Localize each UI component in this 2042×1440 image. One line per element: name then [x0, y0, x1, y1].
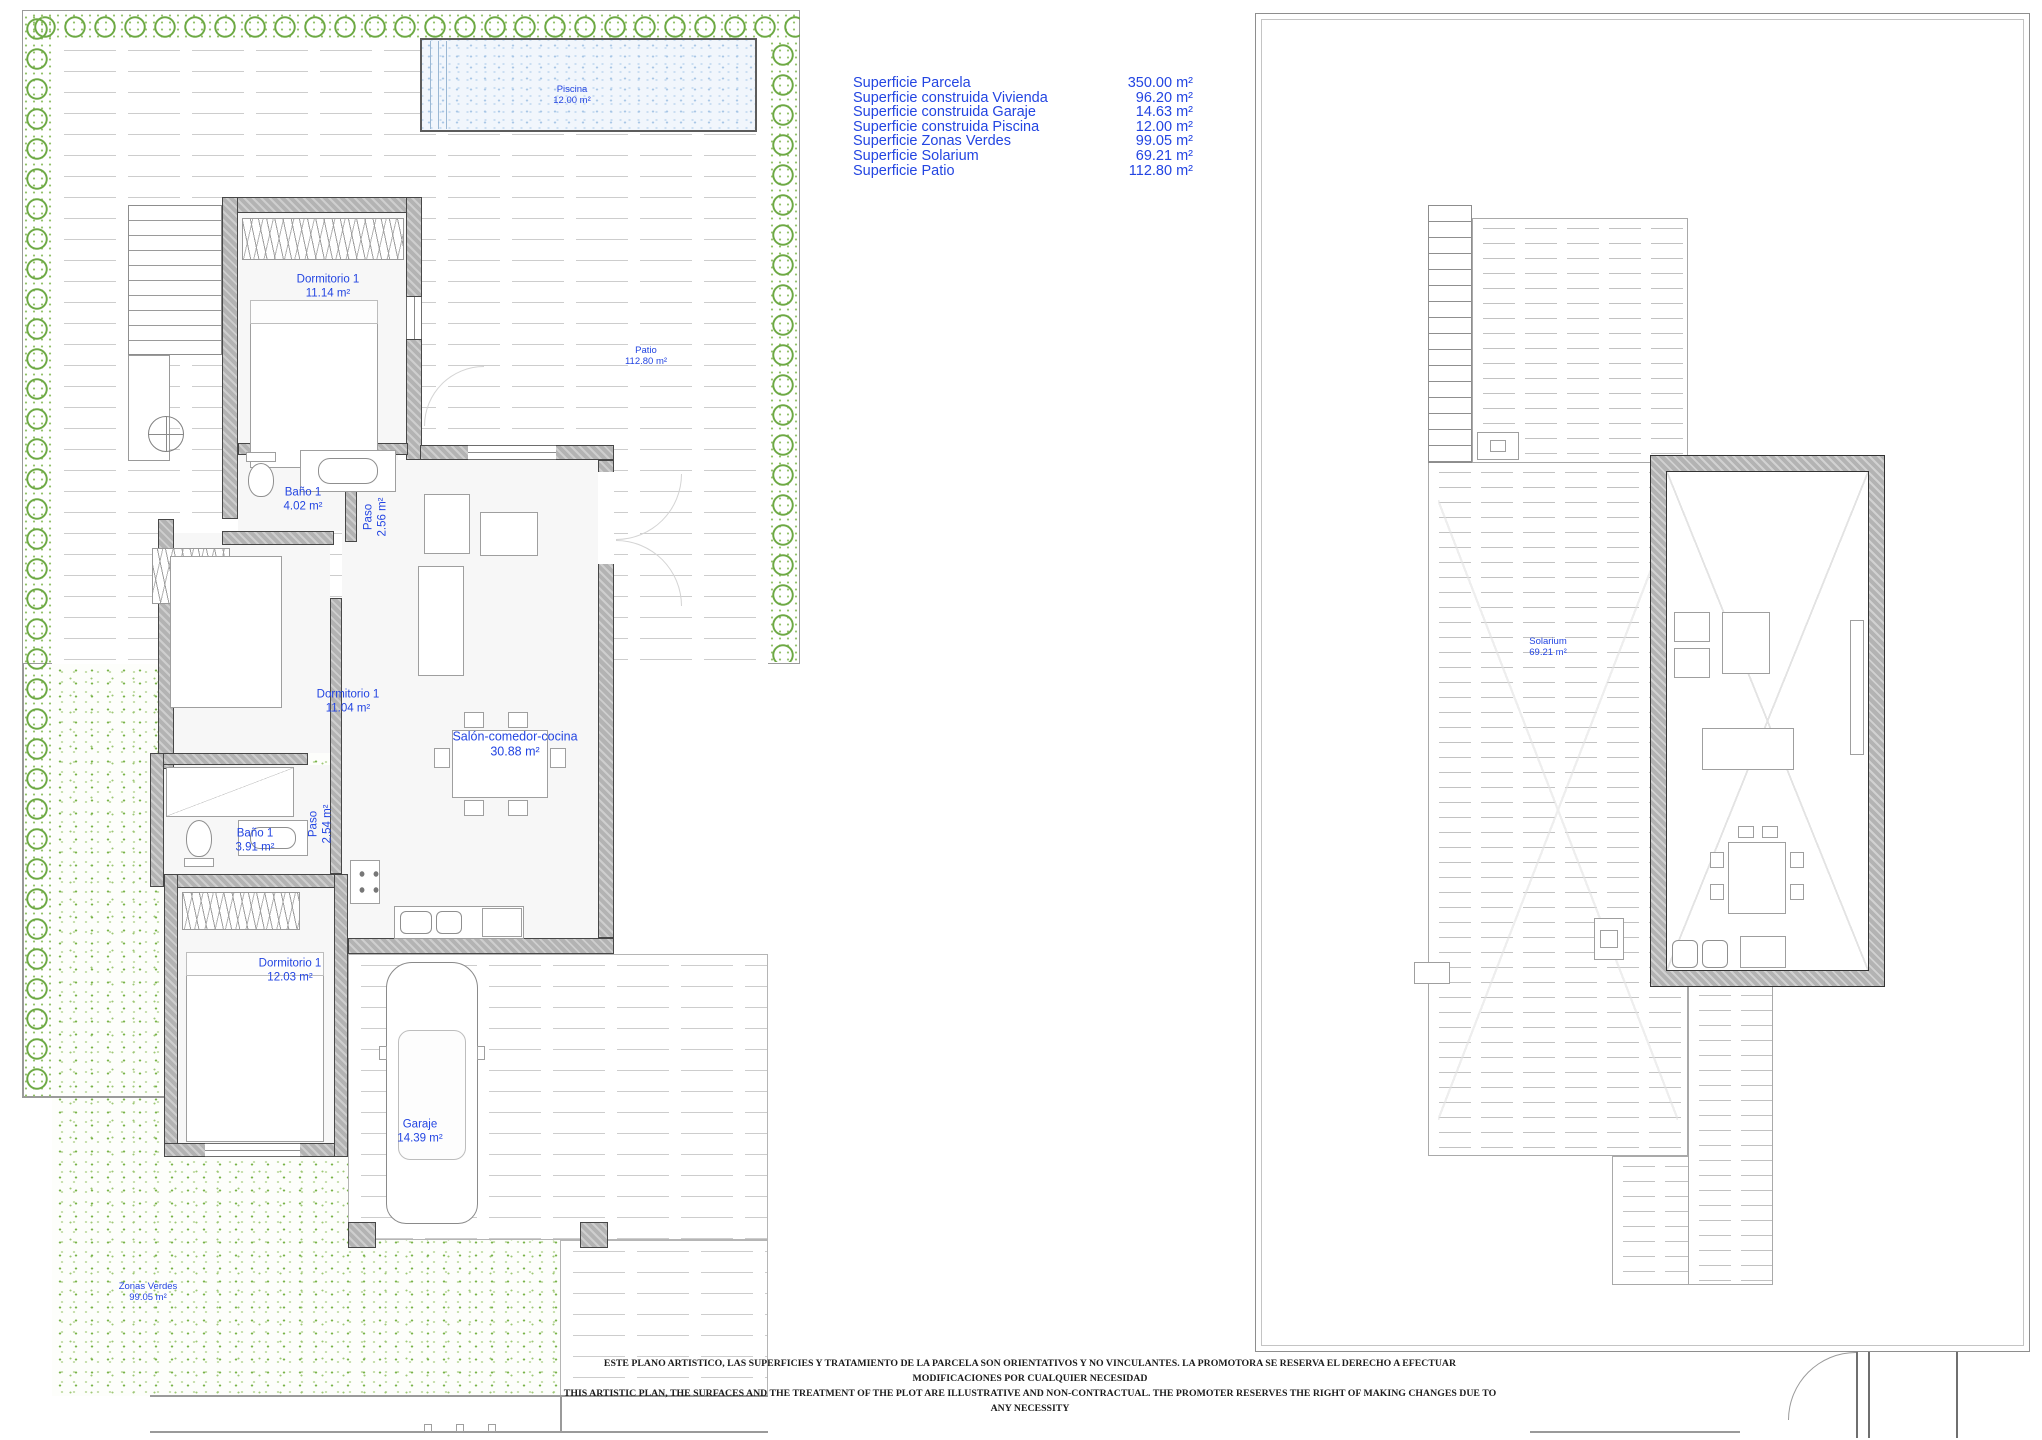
room-name: Dormitorio 1 [297, 273, 360, 285]
table-row: Superficie Solarium69.21 m² [853, 149, 1193, 164]
sofa [1702, 728, 1794, 770]
solarium-plan: Solarium 69.21 m² [1240, 0, 2042, 1440]
pool-steps [423, 41, 447, 129]
closet-dorm3 [182, 892, 300, 930]
boundary-stub [1956, 1352, 1958, 1438]
chair [1738, 826, 1754, 838]
armchair [1674, 612, 1710, 642]
room-area: 14.39 m² [397, 1132, 442, 1144]
gate-post-line [1868, 1352, 1870, 1438]
room-label-zonas-verdes: Zonas Verdes 99.05 m² [119, 1281, 178, 1303]
toilet-tank [246, 452, 276, 462]
room-area: 2.56 m² [376, 498, 388, 537]
room-name: Garaje [403, 1118, 438, 1130]
table-row: Superficie Zonas Verdes99.05 m² [853, 134, 1193, 149]
room-name: Piscina [557, 84, 588, 95]
window [205, 1143, 300, 1157]
wall-segment [150, 753, 164, 887]
chair [1710, 852, 1724, 868]
room-name: Patio [635, 345, 657, 356]
roof-slope-marks [1438, 500, 1678, 1120]
chair [464, 712, 484, 728]
room-label-dormitorio-norte: Dormitorio 1 11.14 m² [297, 273, 360, 300]
row-value: 69.21 m² [1136, 149, 1193, 164]
shower [166, 767, 294, 817]
room-name: Paso [307, 811, 319, 837]
chair [434, 748, 450, 768]
double-sink [1672, 940, 1698, 968]
ground-floor-plan: Piscina 12.00 m² Patio 112.80 m² Dormito… [0, 0, 820, 1440]
garage-pillar [580, 1222, 608, 1248]
toilet [248, 463, 274, 497]
room-label-bano-norte: Baño 1 4.02 m² [284, 486, 323, 513]
row-value: 96.20 m² [1136, 91, 1193, 106]
garage-pillar [348, 1222, 376, 1248]
dishwasher [482, 908, 522, 937]
coffee-table [480, 512, 538, 556]
row-label: Superficie construida Vivienda [853, 91, 1048, 106]
chair [464, 800, 484, 816]
gate-post-line [1856, 1352, 1858, 1438]
room-label-paso-norte: Paso 2.56 m² [362, 498, 389, 537]
room-name: Baño 1 [285, 486, 321, 498]
disclaimer-line-es: ESTE PLANO ARTISTICO, LAS SUPERFICIES Y … [560, 1356, 1500, 1386]
patio-door-opening [598, 472, 614, 564]
room-area: 69.21 m² [1529, 647, 1567, 658]
chimney-inner [1600, 930, 1618, 948]
table-row: Superficie construida Garaje14.63 m² [853, 105, 1193, 120]
chair [1790, 884, 1804, 900]
room-name: Baño 1 [237, 827, 273, 839]
chair [1762, 826, 1778, 838]
wall-segment [406, 197, 422, 297]
bed [250, 300, 378, 468]
sideboard [1850, 620, 1864, 755]
solarium-terrace [1612, 1156, 1689, 1285]
gate-swing-arc [1788, 1352, 1856, 1420]
room-label-solarium: Solarium 69.21 m² [1529, 636, 1567, 658]
room-area: 3.91 m² [236, 841, 275, 853]
floor-plan-sheet: Piscina 12.00 m² Patio 112.80 m² Dormito… [0, 0, 2042, 1440]
room-name: Dormitorio 1 [317, 688, 380, 700]
curb-tick [456, 1424, 464, 1432]
curb-line [1530, 1431, 1740, 1433]
tree-column-right [768, 40, 800, 662]
room-area: 2.54 m² [321, 805, 333, 844]
wall-segment [222, 531, 334, 545]
chair [1790, 852, 1804, 868]
room-name: Solarium [1529, 636, 1567, 647]
coffee-table [1722, 612, 1770, 674]
row-label: Superficie Patio [853, 164, 955, 179]
room-name: Paso [362, 504, 374, 530]
wall-segment [222, 197, 422, 213]
stair-landing-box-inner [1490, 440, 1506, 452]
window [406, 297, 422, 339]
car-mirror [379, 1046, 387, 1060]
room-area: 112.80 m² [625, 356, 667, 367]
closet-dorm1 [242, 218, 404, 260]
room-label-paso-sur: Paso 2.54 m² [307, 805, 334, 844]
row-value: 99.05 m² [1136, 134, 1193, 149]
solarium-terrace [1472, 218, 1688, 463]
row-label: Superficie Solarium [853, 149, 979, 164]
room-name: Dormitorio 1 [259, 957, 322, 969]
solarium-terrace [1688, 985, 1773, 1285]
appliance [1740, 936, 1786, 968]
room-name: Zonas Verdes [119, 1281, 178, 1292]
entry-stairs [128, 205, 222, 355]
room-label-bano-sur: Baño 1 3.91 m² [236, 827, 275, 854]
wall-segment [164, 874, 346, 888]
room-label-dormitorio-centro: Dormitorio 1 11.04 m² [317, 688, 380, 715]
room-area: 11.14 m² [306, 287, 351, 299]
room-label-piscina: Piscina 12.00 m² [553, 84, 591, 106]
solarium-stairs [1428, 205, 1472, 463]
kitchen-sink [400, 911, 432, 934]
double-sink [1702, 940, 1728, 968]
row-label: Superficie construida Piscina [853, 120, 1039, 135]
wall-segment [406, 339, 422, 460]
row-value: 14.63 m² [1136, 105, 1193, 120]
row-label: Superficie Zonas Verdes [853, 134, 1011, 149]
room-area: 4.02 m² [284, 500, 323, 512]
room-area: 12.03 m² [267, 971, 312, 983]
room-label-dormitorio-sur: Dormitorio 1 12.03 m² [259, 957, 322, 984]
wall-segment [164, 874, 178, 1157]
wall-segment [334, 874, 348, 1157]
row-label: Superficie construida Garaje [853, 105, 1036, 120]
row-value: 112.80 m² [1129, 164, 1193, 179]
window [468, 445, 556, 460]
dining-table [1728, 842, 1786, 914]
tree-column-left [22, 14, 52, 1098]
toilet [186, 820, 212, 857]
room-name: Salón-comedor-cocina [452, 729, 577, 743]
room-area: 12.00 m² [553, 95, 591, 106]
stove [350, 860, 380, 904]
toilet-tank [184, 858, 214, 867]
row-label: Superficie Parcela [853, 76, 971, 91]
wall-segment [222, 197, 238, 519]
wash-basin [318, 458, 378, 484]
chair [1710, 884, 1724, 900]
surface-table: Superficie Parcela350.00 m² Superficie c… [853, 76, 1193, 178]
curb-tick [488, 1424, 496, 1432]
row-value: 350.00 m² [1128, 76, 1193, 91]
room-area: 30.88 m² [490, 744, 539, 758]
bed-pillow [250, 300, 378, 324]
table-row: Superficie construida Vivienda96.20 m² [853, 91, 1193, 106]
disclaimer-line-en: THIS ARTISTIC PLAN, THE SURFACES AND THE… [560, 1386, 1500, 1416]
table-row: Superficie Parcela350.00 m² [853, 76, 1193, 91]
room-label-salon: Salón-comedor-cocina 30.88 m² [452, 729, 577, 759]
armchair [1674, 648, 1710, 678]
kitchen-sink [436, 911, 462, 934]
room-area: 11.04 m² [326, 702, 371, 714]
table-row: Superficie Patio112.80 m² [853, 164, 1193, 179]
chair [508, 800, 528, 816]
room-area: 99.05 m² [129, 1292, 167, 1303]
room-label-garaje: Garaje 14.39 m² [397, 1118, 442, 1145]
chair [508, 712, 528, 728]
room-label-patio: Patio 112.80 m² [625, 345, 667, 367]
disclaimer: ESTE PLANO ARTISTICO, LAS SUPERFICIES Y … [560, 1356, 1500, 1416]
bed [170, 556, 282, 708]
wall-segment [348, 938, 614, 954]
rooftop-unit [1414, 962, 1450, 984]
wall-segment [158, 753, 308, 765]
sofa [418, 566, 464, 676]
row-value: 12.00 m² [1136, 120, 1193, 135]
table-row: Superficie construida Piscina12.00 m² [853, 120, 1193, 135]
car-mirror [477, 1046, 485, 1060]
floor-drain [148, 416, 184, 452]
curb-tick [424, 1424, 432, 1432]
armchair [424, 494, 470, 554]
